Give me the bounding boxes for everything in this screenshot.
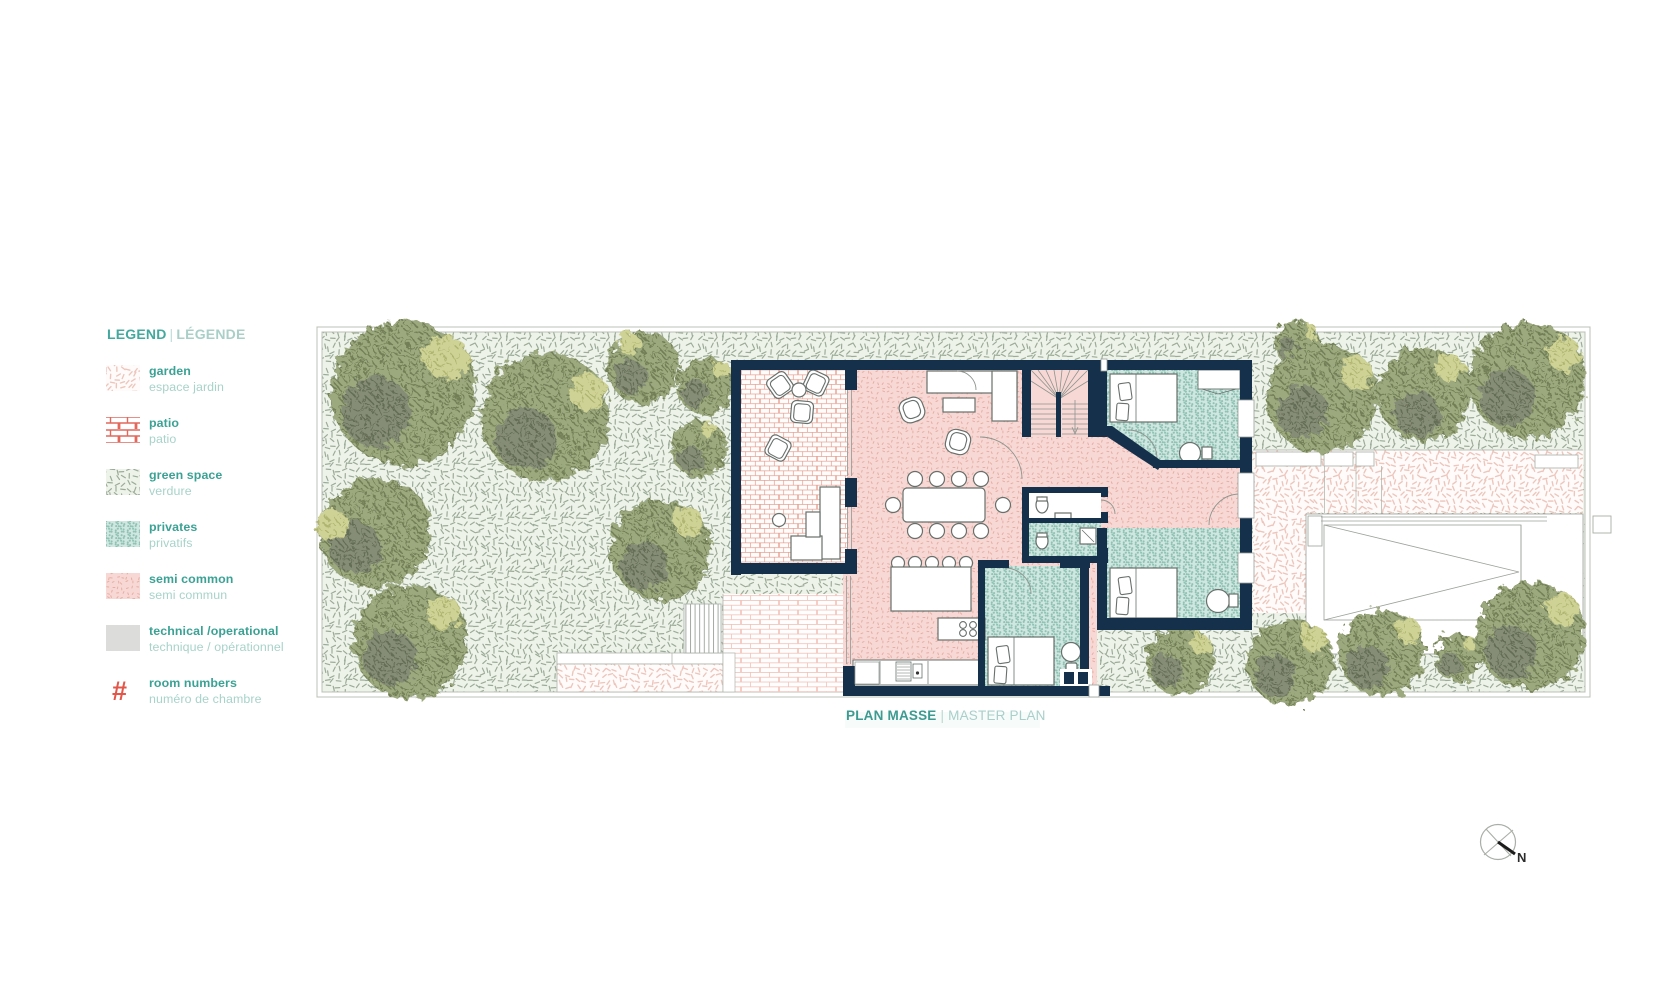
svg-text:N: N bbox=[1517, 850, 1526, 865]
svg-text:#: # bbox=[112, 676, 127, 706]
